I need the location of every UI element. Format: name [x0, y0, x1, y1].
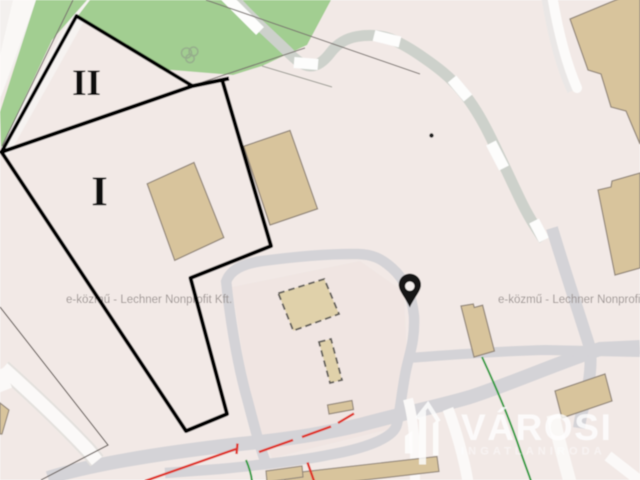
svg-text:I: I — [91, 170, 107, 216]
svg-text:II: II — [72, 63, 101, 104]
svg-text:VÁROSI: VÁROSI — [461, 407, 612, 448]
svg-text:INGATLANIRODA: INGATLANIRODA — [461, 446, 606, 458]
svg-text:e-közmű - Lechner Nonprofit Kf: e-közmű - Lechner Nonprofit Kft. — [498, 294, 640, 306]
svg-text:e-közmű - Lechner Nonprofit Kf: e-közmű - Lechner Nonprofit Kft. — [66, 294, 232, 306]
